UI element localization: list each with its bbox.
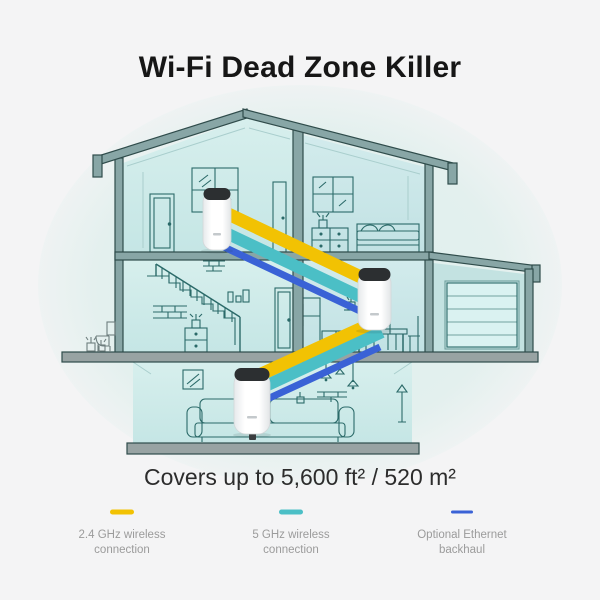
tplink-logo-mark <box>247 416 257 419</box>
page: Wi-Fi Dead Zone Killer <box>0 0 600 600</box>
tplink-logo-mark <box>370 313 379 316</box>
legend-item-5ghz: 5 GHz wireless connection <box>211 509 371 558</box>
basement-slab <box>127 443 419 454</box>
roof-right-cap <box>448 163 457 184</box>
legend-label-5ghz: 5 GHz wireless connection <box>252 528 329 558</box>
garage-right-wall <box>525 269 533 354</box>
legend-item-ethernet: Optional Ethernet backhaul <box>382 509 542 558</box>
legend-item-24ghz: 2.4 GHz wireless connection <box>42 509 202 558</box>
room-stair <box>123 260 293 352</box>
tplink-logo-mark <box>213 233 221 236</box>
legend-label-24ghz: 2.4 GHz wireless connection <box>79 528 166 558</box>
mesh-device-main-floor <box>356 268 392 334</box>
roof-left-cap <box>93 155 102 177</box>
legend-label-ethernet: Optional Ethernet backhaul <box>417 528 507 558</box>
mesh-device-attic <box>201 188 233 254</box>
legend-dash-ethernet <box>449 509 475 515</box>
legend-dash-24ghz <box>109 509 135 515</box>
legend-dash-5ghz <box>278 509 304 515</box>
mesh-device-basement <box>233 368 271 440</box>
coverage-text: Covers up to 5,600 ft² / 520 m² <box>0 464 600 491</box>
garage-door <box>445 281 519 349</box>
